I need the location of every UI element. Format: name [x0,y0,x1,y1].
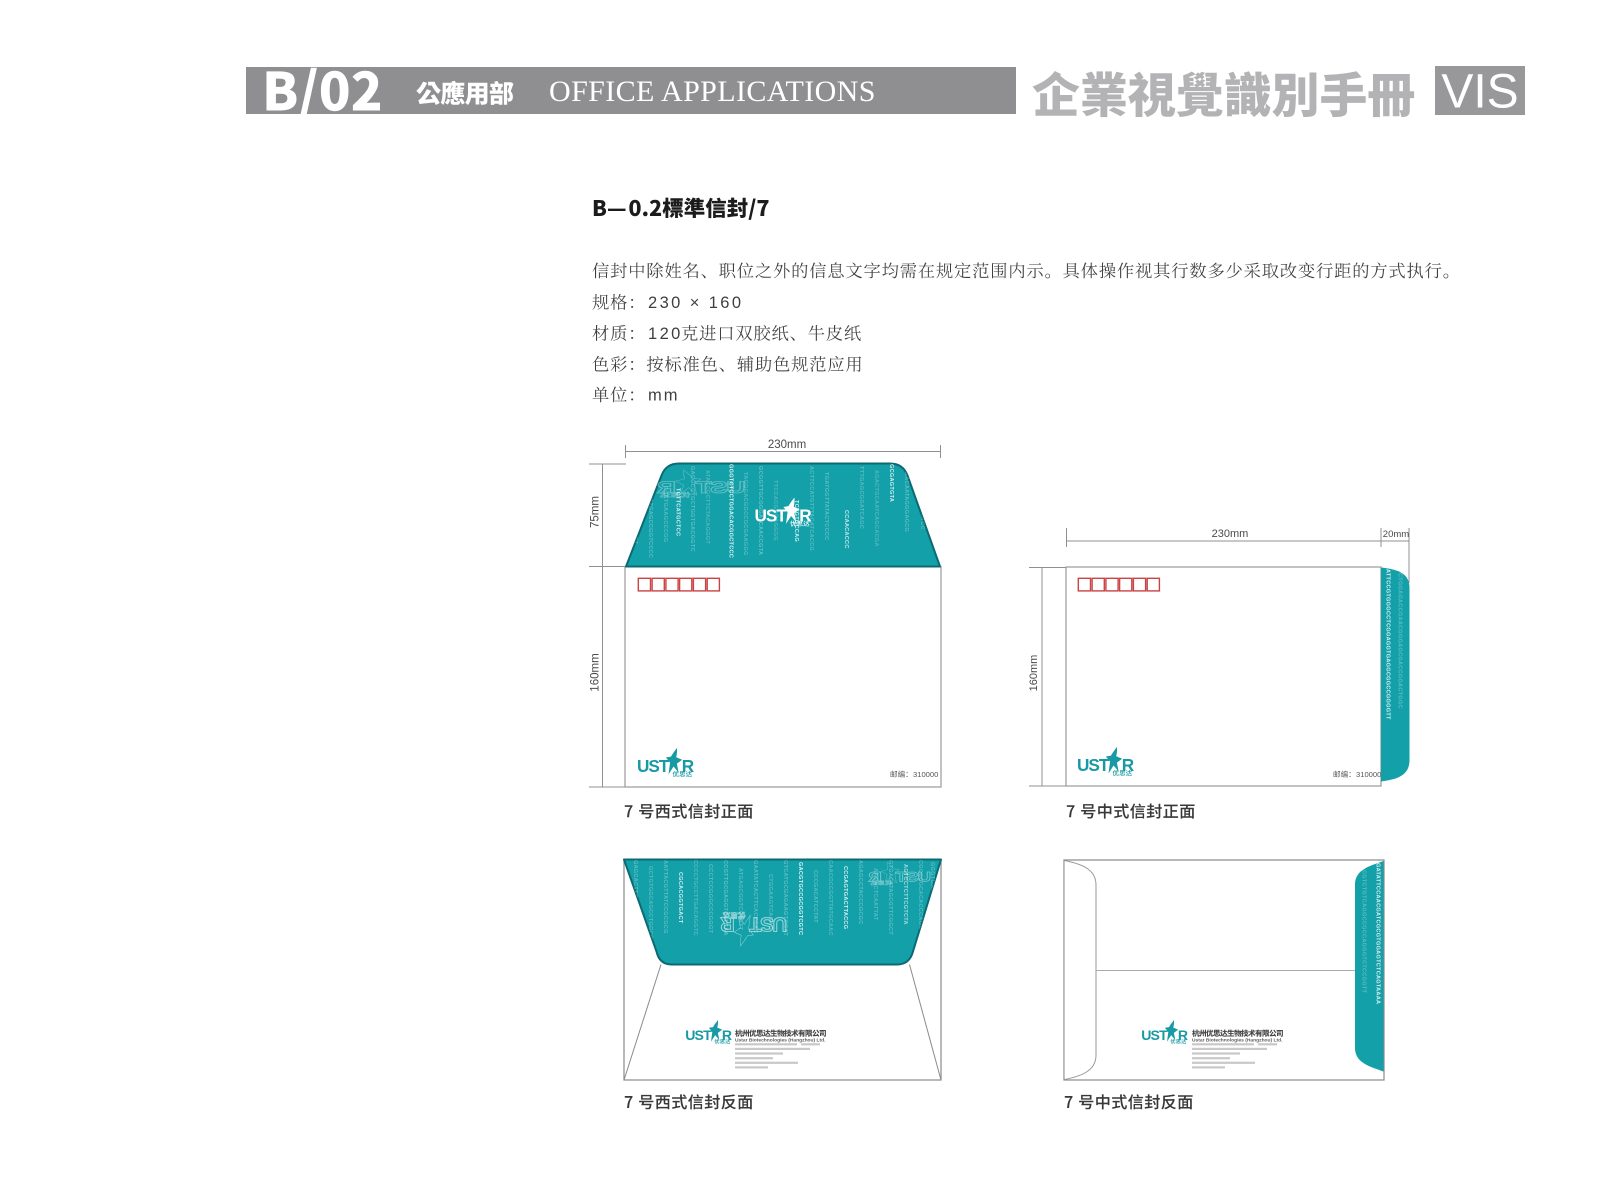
svg-text:TTTGAGCGGATCAGC: TTTGAGCGGATCAGC [858,466,864,529]
svg-text:GATATTCCAACGATCGCGTGGAGTCTCAGT: GATATTCCAACGATCGCGTGGAGTCTCAGTAAAA [1375,863,1381,1004]
svg-text:UST: UST [637,756,670,776]
svg-text:R: R [682,756,695,776]
svg-text:310000: 310000 [1356,770,1381,779]
svg-text:CCCGACATCCTAT: CCCGACATCCTAT [812,870,818,923]
svg-text:TTGCGTCTGCGGACCA: TTGCGTCTGCGGACCA [931,464,937,532]
svg-text:CCGAGTGACTTACCG: CCGAGTGACTTACCG [842,866,848,929]
svg-text:UST: UST [695,478,746,496]
svg-text:CCAACACCC: CCAACACCC [843,510,849,549]
svg-text:CCCTCCGGGCCCGGGT: CCCTCCGGGCCCGGGT [707,864,713,934]
svg-text:mm: mm [648,387,680,405]
svg-text:CAACGCCGGTTATGCAAC: CAACGCCGGTTATGCAAC [827,860,833,936]
svg-text:ATTCCGTGGGCCTCGGAGGTGAGGCGGCCG: ATTCCGTGGGCCTCGGAGGTGAGGCGGCCGGGGTT [1385,569,1391,720]
svg-text:OFFICE APPLICATIONS: OFFICE APPLICATIONS [549,75,876,108]
svg-text:120: 120 [648,325,683,343]
svg-text:GTGACTTAGCGTTCGGCT: GTGACTTAGCGTTCGGCT [887,860,893,935]
svg-text:CCCCTGCCTTGACAGGTC: CCCCTGCCTTGACAGGTC [692,860,698,936]
svg-text:GTAGTGCTATGAGCCGGTCCCC: GTAGTGCTATGAGCCGGTCCCC [647,466,653,558]
svg-text:R: R [1122,755,1135,775]
svg-text:GACGCCTGCTGGTGACGGTC: GACGCCTGCTGGTGACGGTC [689,466,695,552]
svg-text:CTGGAGACCGAACGGGAGCGACCGGACTGG: CTGGAGACCGAACGGGAGCGACCGGACTGGC [1397,573,1403,709]
svg-text:UST: UST [1077,755,1110,775]
svg-text:CGTCTGTCAGGCCGCCAGGGTCTCCGGTT: CGTCTGTCAGGCCGCCAGGGTCTCCGGTT [1361,870,1367,993]
svg-text:TGATGGTTATACTCCCC: TGATGGTTATACTCCCC [823,472,829,540]
svg-text:230mm: 230mm [1212,528,1249,540]
svg-text:CGCACGGTGACT: CGCACGGTGACT [677,872,683,924]
svg-text:160mm: 160mm [590,653,602,691]
svg-text:20mm: 20mm [1383,529,1409,540]
svg-text:AATTACGTTATCCGCGCG: AATTACGTTATCCGCGCG [662,860,668,934]
svg-text:UST: UST [1141,1027,1168,1043]
svg-text:GCGAGTGTA: GCGAGTGTA [888,464,894,502]
svg-text:VIS: VIS [1441,66,1518,119]
svg-text:230 × 160: 230 × 160 [648,294,743,312]
svg-text:75mm: 75mm [590,496,602,528]
svg-text:230mm: 230mm [768,439,806,451]
svg-text:UST: UST [685,1027,712,1043]
svg-text:160mm: 160mm [1028,655,1040,692]
svg-text:UST: UST [755,506,788,526]
svg-text:Ustar Biotechnologies (Hangzho: Ustar Biotechnologies (Hangzhou) Ltd. [735,1037,826,1043]
svg-text:Ustar Biotechnologies (Hangzho: Ustar Biotechnologies (Hangzhou) Ltd. [1192,1037,1283,1043]
svg-text:310000: 310000 [913,770,938,779]
svg-text:AGAGCCTACCCGCGC: AGAGCCTACCCGCGC [857,860,863,925]
svg-text:GACGTGCCGCGGTCGTC: GACGTGCCGCGGTCGTC [797,862,803,935]
svg-text:UST: UST [749,913,788,935]
svg-text:UST: UST [896,869,932,885]
svg-text:AGACTGCAATCAGCACGA: AGACTGCAATCAGCACGA [873,470,879,547]
svg-text:CAGTTGCGCTCAACTT: CAGTTGCGCTCAACTT [632,478,638,545]
svg-text:TGACAATAGGGAGCG: TGACAATAGGGAGCG [903,468,909,532]
svg-text:R: R [799,506,812,526]
